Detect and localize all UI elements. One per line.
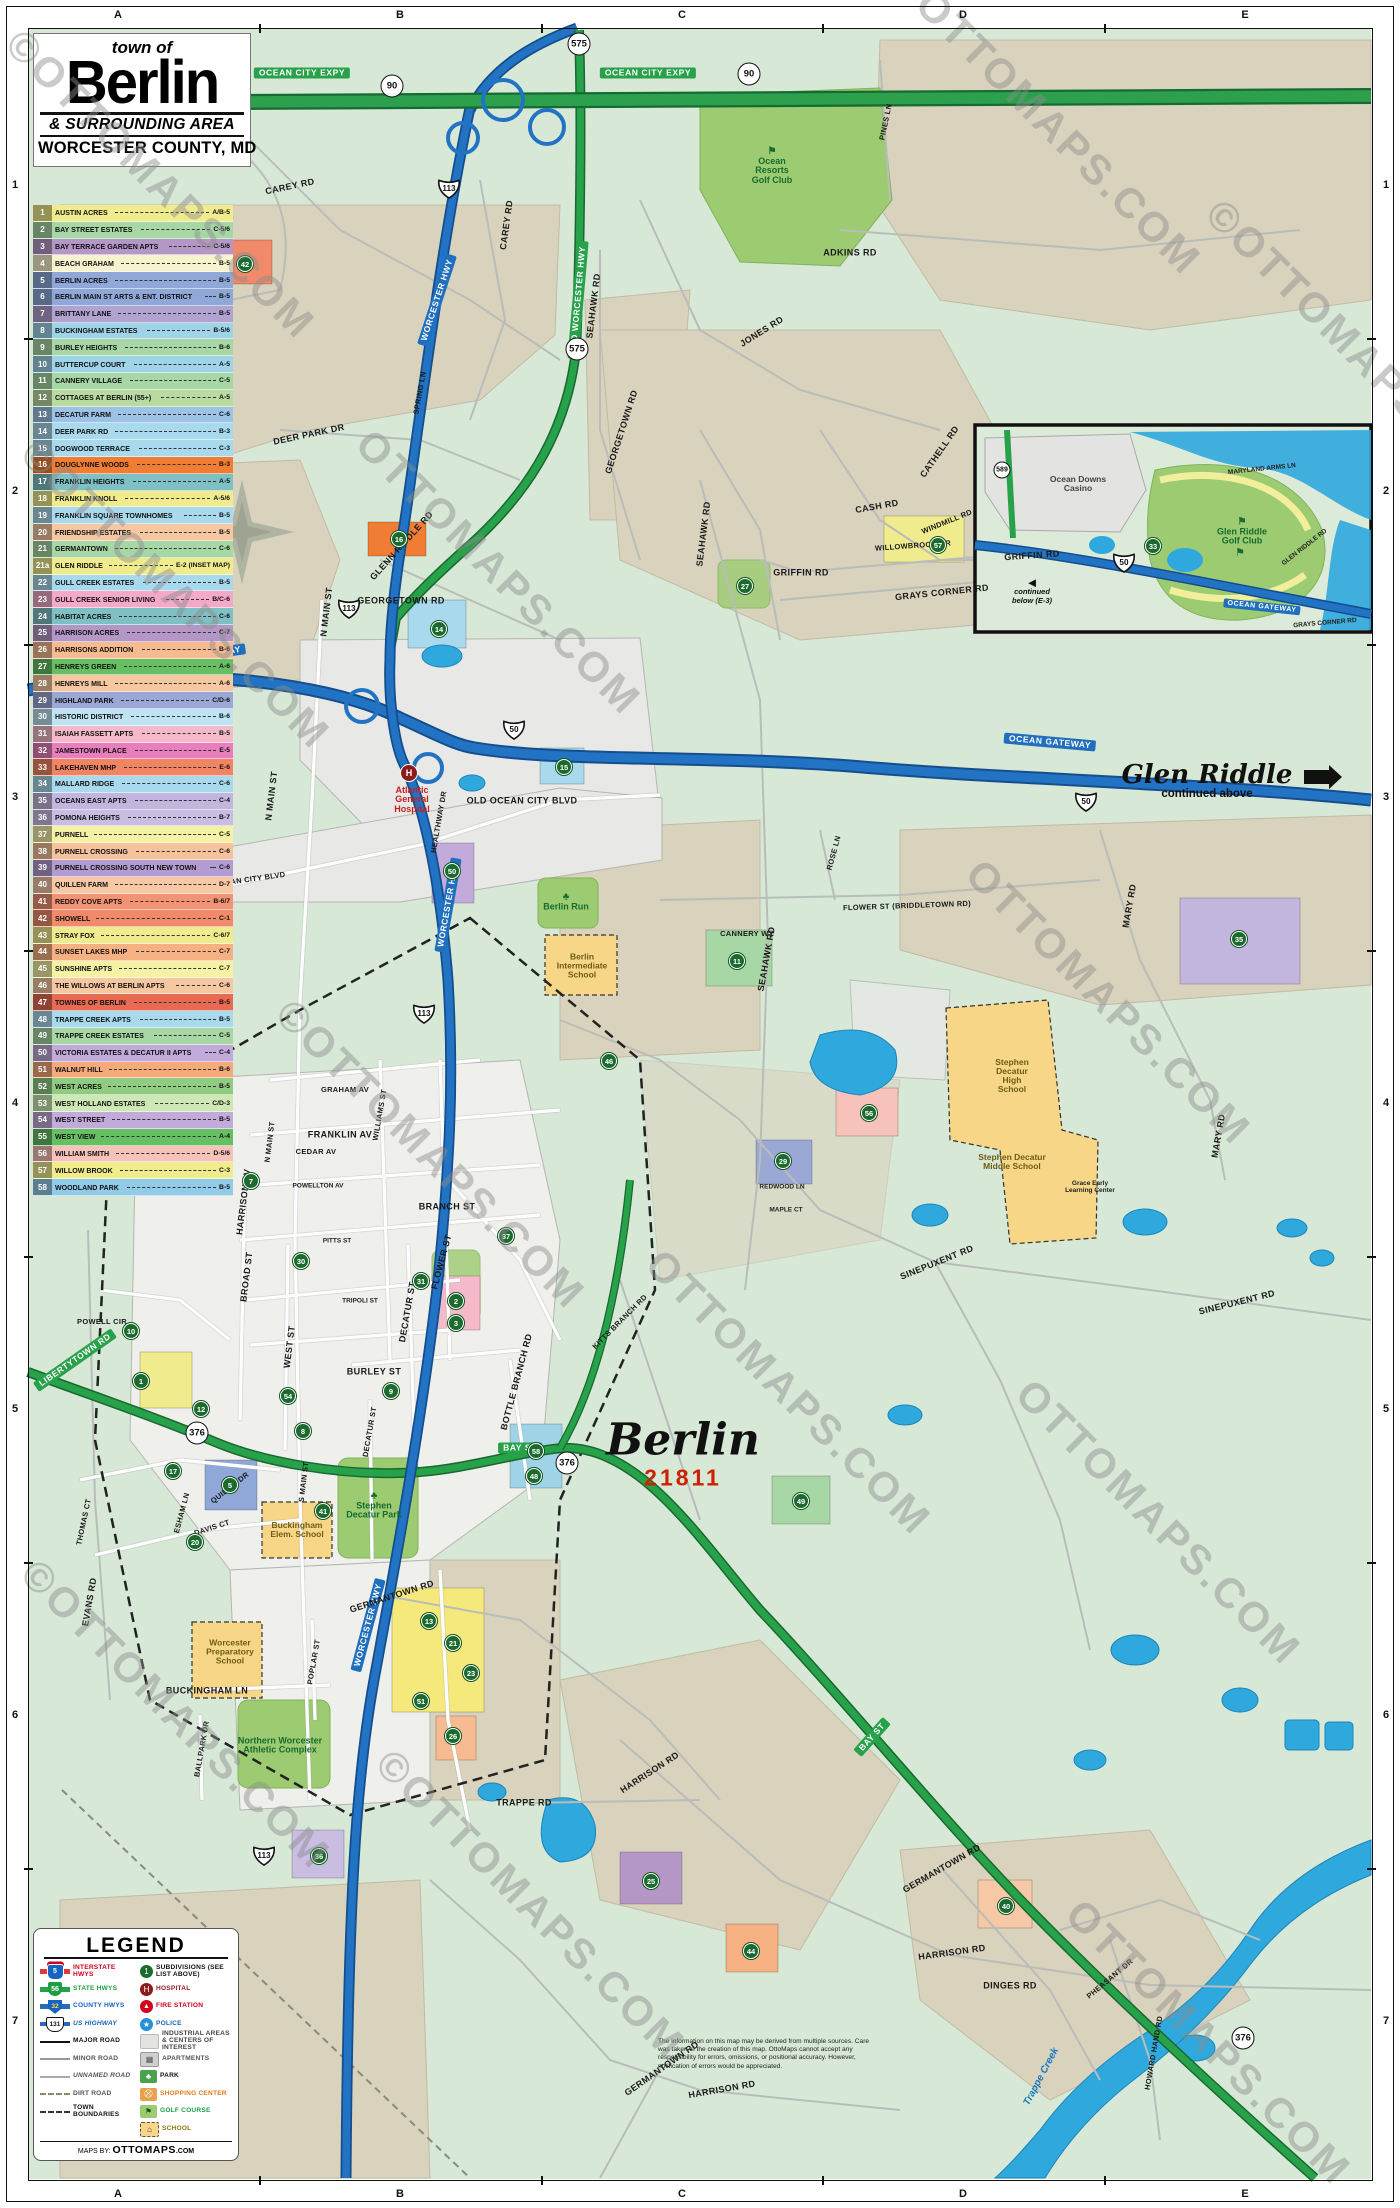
continuation-arrow-icon	[1304, 770, 1330, 784]
subdivision-number: 21	[33, 541, 52, 557]
golf-icon: ⚑	[140, 2105, 157, 2118]
subdivision-gridref: B-5	[219, 512, 230, 519]
subdivision-marker-14: 14	[431, 621, 447, 637]
subdivision-gridref: C-5/6	[213, 243, 230, 250]
subdivision-marker-44: 44	[743, 1943, 759, 1959]
subdivision-row: 26HARRISONS ADDITIONB-6	[33, 642, 233, 659]
subdivision-name: BAY TERRACE GARDEN APTS	[55, 242, 158, 251]
subdivision-row: 9BURLEY HEIGHTSB-6	[33, 339, 233, 356]
subdivision-gridref: C-6	[219, 780, 230, 787]
subdivision-marker-17: 17	[165, 1463, 181, 1479]
subdivision-gridref: C-7	[219, 965, 230, 972]
subdivision-marker-35: 35	[1231, 931, 1247, 947]
legend-symbol-industrial: INDUSTRIAL AREAS & CENTERS OF INTEREST	[140, 2033, 232, 2051]
inset-continuation-note: ◄ continued below (E-3)	[1012, 578, 1052, 605]
park-icon: ♣	[140, 2070, 157, 2083]
legend-symbols: 1SUBDIVISIONS (SEE LIST ABOVE)HHOSPITAL▲…	[140, 1963, 232, 2138]
subdivision-number: 53	[33, 1095, 52, 1111]
subdivision-gridref: B-5	[219, 1016, 230, 1023]
subdivision-row: 47TOWNES OF BERLINB-5	[33, 994, 233, 1011]
subdivision-row: 4BEACH GRAHAMB-5	[33, 255, 233, 272]
subdivision-number: 42	[33, 910, 52, 926]
grid-col-A: A	[114, 9, 122, 21]
subdivision-number: 54	[33, 1112, 52, 1128]
subdivision-number: 52	[33, 1078, 52, 1094]
subdivision-name: WALNUT HILL	[55, 1065, 103, 1074]
subdivision-row: 18FRANKLIN KNOLLA-5/6	[33, 491, 233, 508]
subdivision-gridref: E-5	[219, 747, 230, 754]
town-label-berlin: Berlin 21811	[606, 1419, 760, 1492]
subdivision-gridref: B-5	[219, 579, 230, 586]
subdivision-row: 2BAY STREET ESTATESC-5/6	[33, 222, 233, 239]
grid-row-6: 6	[12, 1709, 18, 1721]
subdivision-name: BUCKINGHAM ESTATES	[55, 326, 138, 335]
subdivision-name: DOUGLYNNE WOODS	[55, 460, 129, 469]
subdivision-name: BERLIN ACRES	[55, 276, 108, 285]
legend-label: DIRT ROAD	[73, 2091, 111, 2098]
subdivision-name: WEST VIEW	[55, 1132, 95, 1141]
glen-riddle-name: Glen Riddle	[1112, 762, 1302, 788]
grid-row-2: 2	[1383, 485, 1389, 497]
subdivision-marker-29: 29	[775, 1153, 791, 1169]
subdivision-row: 11CANNERY VILLAGEC-5	[33, 373, 233, 390]
legend-symbol-apartments: ▦APARTMENTS	[140, 2051, 232, 2069]
subdivision-number: 21a	[33, 558, 52, 574]
subdivision-row: 28HENREYS MILLA-6	[33, 675, 233, 692]
grid-row-3: 3	[12, 791, 18, 803]
subdivision-gridref: B-5	[219, 260, 230, 267]
subdivision-row: 39PURNELL CROSSING SOUTH NEW TOWNC-6	[33, 860, 233, 877]
subdivision-name: POMONA HEIGHTS	[55, 813, 120, 822]
subdivision-name: TRAPPE CREEK APTS	[55, 1015, 131, 1024]
subdivision-name: VICTORIA ESTATES & DECATUR II APTS	[55, 1048, 191, 1057]
grid-col-C: C	[678, 2188, 686, 2200]
subdivision-gridref: B-6	[219, 344, 230, 351]
subdivision-name: DOGWOOD TERRACE	[55, 444, 130, 453]
subdivision-number: 45	[33, 961, 52, 977]
subdivision-name: HARRISONS ADDITION	[55, 645, 133, 654]
subdivision-row: 20FRIENDSHIP ESTATESB-5	[33, 524, 233, 541]
subdivision-marker-15: 15	[556, 759, 572, 775]
apartments-icon: ▦	[140, 2052, 159, 2067]
subdivision-name: QUILLEN FARM	[55, 880, 108, 889]
grid-row-7: 7	[1383, 2015, 1389, 2027]
legend-label: PARK	[160, 2073, 179, 2080]
legend-symbol-golf: ⚑GOLF COURSE	[140, 2103, 232, 2121]
subdivision-marker-46: 46	[601, 1053, 617, 1069]
ruler-tick	[24, 1868, 33, 1870]
subdivision-marker-50: 50	[444, 863, 460, 879]
subdivision-gridref: B-5	[219, 293, 230, 300]
subdivision-number: 58	[33, 1179, 52, 1195]
subdivision-number: 22	[33, 575, 52, 591]
subdivision-number: 36	[33, 810, 52, 826]
subdivision-name: REDDY COVE APTS	[55, 897, 122, 906]
legend-label: UNNAMED ROAD	[73, 2073, 130, 2080]
subdivision-gridref: C-6	[219, 545, 230, 552]
subdivision-row: 33LAKEHAVEN MHPE-6	[33, 759, 233, 776]
subdivision-gridref: C-6	[219, 864, 230, 871]
credit-brand: OTTOMAPS	[113, 2144, 176, 2156]
subdivision-number: 25	[33, 625, 52, 641]
subdivision-row: 24HABITAT ACRESC-6	[33, 608, 233, 625]
ruler-tick	[24, 1562, 33, 1564]
subdivision-number: 11	[33, 373, 52, 389]
ruler-tick	[1367, 1256, 1376, 1258]
subdivision-gridref: B-6	[219, 713, 230, 720]
subdivision-number: 55	[33, 1129, 52, 1145]
subdivision-number: 30	[33, 709, 52, 725]
grid-row-2: 2	[12, 485, 18, 497]
subdivision-gridref: A-6	[219, 680, 230, 687]
subdivision-gridref: B-3	[219, 461, 230, 468]
subdivision-row: 3BAY TERRACE GARDEN APTSC-5/6	[33, 239, 233, 256]
subdivision-marker-20: 20	[187, 1534, 203, 1550]
subdivision-name: SHOWELL	[55, 914, 90, 923]
subdivision-gridref: A-6	[219, 663, 230, 670]
subdivision-number: 7	[33, 306, 52, 322]
subdivision-row: 8BUCKINGHAM ESTATESB-5/6	[33, 323, 233, 340]
subdivision-name: JAMESTOWN PLACE	[55, 746, 127, 755]
legend-label: US HIGHWAY	[73, 2021, 117, 2028]
subdivision-name: SUNSHINE APTS	[55, 964, 112, 973]
subdivision-name: WEST STREET	[55, 1115, 105, 1124]
subdivision-number: 43	[33, 927, 52, 943]
legend-label: SHOPPING CENTER	[160, 2091, 227, 2098]
subdivision-marker-42: 42	[237, 256, 253, 272]
subdivision-marker-1: 1	[133, 1373, 149, 1389]
subdivision-row: 43STRAY FOXC-6/7	[33, 927, 233, 944]
subdivision-row: 22GULL CREEK ESTATESB-5	[33, 575, 233, 592]
subdivision-gridref: C-7	[219, 948, 230, 955]
subdivision-row: 48TRAPPE CREEK APTSB-5	[33, 1011, 233, 1028]
subdivision-name: THE WILLOWS AT BERLIN APTS	[55, 981, 165, 990]
ruler-tick	[822, 2176, 824, 2185]
subdivision-gridref: C-1	[219, 915, 230, 922]
subdivision-number: 47	[33, 994, 52, 1010]
subdivision-gridref: D-5/6	[213, 1150, 230, 1157]
subdivision-gridref: B-6/7	[213, 898, 230, 905]
ruler-tick	[1367, 950, 1376, 952]
subdivision-row: 51WALNUT HILLB-6	[33, 1062, 233, 1079]
hospital-icon: H	[400, 764, 418, 782]
subdivision-name: STRAY FOX	[55, 931, 95, 940]
grid-row-3: 3	[1383, 791, 1389, 803]
subdivision-number: 49	[33, 1028, 52, 1044]
subdivision-number: 37	[33, 826, 52, 842]
subdivision-marker-48: 48	[526, 1468, 542, 1484]
subdivision-marker-30: 30	[293, 1253, 309, 1269]
subdivision-row: 37PURNELLC-5	[33, 826, 233, 843]
legend-label: TOWN BOUNDARIES	[73, 2105, 136, 2119]
subdivision-gridref: B-5	[219, 1116, 230, 1123]
grid-row-7: 7	[12, 2015, 18, 2027]
subdivision-number: 3	[33, 239, 52, 255]
subdivision-gridref: B-5	[219, 730, 230, 737]
subdivision-number: 2	[33, 222, 52, 238]
legend-symbol-shopping: ⛒SHOPPING CENTER	[140, 2086, 232, 2104]
legend-line-sample	[40, 2058, 70, 2060]
subdivision-gridref: C-7	[219, 629, 230, 636]
subdivision-gridref: B-5/6	[213, 327, 230, 334]
subdivision-name: FRANKLIN SQUARE TOWNHOMES	[55, 511, 173, 520]
subdivision-row: 53WEST HOLLAND ESTATESC/D-3	[33, 1095, 233, 1112]
subdivision-number: 18	[33, 491, 52, 507]
subdivision-marker-3: 3	[448, 1315, 464, 1331]
subdivision-marker-36: 36	[311, 1848, 327, 1864]
subdivision-row: 30HISTORIC DISTRICTB-6	[33, 709, 233, 726]
subdivision-marker-41: 41	[315, 1503, 331, 1519]
subdivision-name: OCEANS EAST APTS	[55, 796, 127, 805]
grid-row-6: 6	[1383, 1709, 1389, 1721]
subdivision-marker-7: 7	[243, 1173, 259, 1189]
legend-label: MINOR ROAD	[73, 2056, 118, 2063]
subdivision-gridref: C-3	[219, 1167, 230, 1174]
berlin-map-page: ⚑ OCEAN CITY EXPYOCEAN CITY EXPYWORCESTE…	[0, 0, 1400, 2208]
ruler-tick	[1367, 644, 1376, 646]
legend-line-sample	[40, 2041, 70, 2044]
subdivision-name: TRAPPE CREEK ESTATES	[55, 1031, 144, 1040]
subdivision-name: AUSTIN ACRES	[55, 208, 108, 217]
subdivision-row: 54WEST STREETB-5	[33, 1112, 233, 1129]
ruler-tick	[259, 24, 261, 33]
subdivision-gridref: C/D-3	[212, 1100, 230, 1107]
subdivision-number: 34	[33, 776, 52, 792]
subdivision-gridref: C-4	[219, 797, 230, 804]
subdivision-row: 55WEST VIEWA-4	[33, 1129, 233, 1146]
ruler-tick	[1367, 1868, 1376, 1870]
subdivision-name: GERMANTOWN	[55, 544, 108, 553]
credit-suffix: .COM	[176, 2148, 194, 2155]
fire-icon: ▲	[140, 2000, 153, 2013]
subdivision-name: HISTORIC DISTRICT	[55, 712, 123, 721]
subdivision-row: 58WOODLAND PARKB-5	[33, 1179, 233, 1196]
subdivision-marker-9: 9	[383, 1383, 399, 1399]
hospital-icon: H	[140, 1983, 153, 1996]
subdivision-marker-5: 5	[222, 1477, 238, 1493]
subdivision-number: 4	[33, 255, 52, 271]
subdivision-name: GLEN RIDDLE	[55, 561, 103, 570]
legend-line-sample	[40, 2093, 70, 2095]
subdivision-row: 15DOGWOOD TERRACEC-3	[33, 440, 233, 457]
subdivision-marker-13: 13	[421, 1613, 437, 1629]
subdivision-row: 12COTTAGES AT BERLIN (55+)A-5	[33, 390, 233, 407]
subdivision-row: 40QUILLEN FARMD-7	[33, 877, 233, 894]
subdivision-gridref: B/C-6	[212, 596, 230, 603]
subdivision-row: 27HENREYS GREENA-6	[33, 659, 233, 676]
ruler-tick	[822, 24, 824, 33]
subdivision-number: 32	[33, 743, 52, 759]
credit-pre: MAPS BY:	[78, 2148, 111, 2155]
legend-label: COUNTY HWYS	[73, 2003, 125, 2010]
subdivision-row: 16DOUGLYNNE WOODSB-3	[33, 457, 233, 474]
legend-symbol-fire: ▲FIRE STATION	[140, 1998, 232, 2016]
subdivision-number: 51	[33, 1062, 52, 1078]
subdivision-marker-16: 16	[391, 531, 407, 547]
subdivision-gridref: C-5	[219, 831, 230, 838]
subdivision-number: 41	[33, 894, 52, 910]
subdivision-marker-8: 8	[295, 1423, 311, 1439]
subdivision-marker-31: 31	[413, 1273, 429, 1289]
legend-road-types: 5INTERSTATE HWYS56STATE HWYS32COUNTY HWY…	[40, 1963, 136, 2138]
ruler-tick	[541, 24, 543, 33]
subdivision-name: WEST HOLLAND ESTATES	[55, 1099, 145, 1108]
subdivision-row: 42SHOWELLC-1	[33, 910, 233, 927]
legend-symbol-hospital: HHOSPITAL	[140, 1981, 232, 1999]
grid-col-D: D	[959, 2188, 967, 2200]
subdivision-marker-10: 10	[123, 1323, 139, 1339]
subdivision-marker-57: 57	[930, 537, 946, 553]
subdivision-name: BRITTANY LANE	[55, 309, 111, 318]
ruler-tick	[259, 2176, 261, 2185]
subdivision-gridref: B-5	[219, 1083, 230, 1090]
legend-label: INDUSTRIAL AREAS & CENTERS OF INTEREST	[162, 2031, 232, 2052]
grid-row-4: 4	[1383, 1097, 1389, 1109]
subdivision-marker-33: 33	[1145, 538, 1161, 554]
subdivision-marker-2: 2	[448, 1293, 464, 1309]
legend-road-major: MAJOR ROAD	[40, 2033, 136, 2051]
subdivision-row: 32JAMESTOWN PLACEE-5	[33, 743, 233, 760]
subdivision-marker-27: 27	[737, 578, 753, 594]
subdivision-number: 27	[33, 659, 52, 675]
subdivision-gridref: C-5/6	[213, 226, 230, 233]
subdivision-gridref: C-6	[219, 848, 230, 855]
subdivision-row: 7BRITTANY LANEB-5	[33, 306, 233, 323]
title-county: WORCESTER COUNTY, MD	[38, 139, 246, 158]
ruler-tick	[1367, 338, 1376, 340]
subdivision-name: WILLIAM SMITH	[55, 1149, 109, 1158]
grid-row-5: 5	[1383, 1403, 1389, 1415]
legend-line-sample: 5	[40, 1969, 70, 1974]
subdivision-number: 50	[33, 1045, 52, 1061]
subdivision-gridref: C-6	[219, 613, 230, 620]
subdivision-gridref: C-6	[219, 411, 230, 418]
subdivision-gridref: C/D-6	[212, 697, 230, 704]
subdivision-marker-54: 54	[280, 1388, 296, 1404]
subdivision-gridref: A-4	[219, 1133, 230, 1140]
ruler-tick	[24, 644, 33, 646]
subdivision-gridref: C-5	[219, 1032, 230, 1039]
subdivision-gridref: C-6	[219, 982, 230, 989]
glen-riddle-note: Glen Riddle continued above	[1112, 762, 1302, 800]
legend-symbol-subdivision: 1SUBDIVISIONS (SEE LIST ABOVE)	[140, 1963, 232, 1981]
subdivision-name: FRANKLIN KNOLL	[55, 494, 117, 503]
subdivision-marker-37: 37	[498, 1228, 514, 1244]
subdivision-icon: 1	[140, 1965, 153, 1978]
subdivision-number: 48	[33, 1011, 52, 1027]
town-name: Berlin	[606, 1419, 760, 1463]
subdivision-name: BERLIN MAIN ST ARTS & ENT. DISTRICT	[55, 292, 192, 301]
ruler-tick	[1367, 1562, 1376, 1564]
subdivision-gridref: B-5	[219, 310, 230, 317]
subdivision-name: GULL CREEK SENIOR LIVING	[55, 595, 155, 604]
legend-road-unnamed: UNNAMED ROAD	[40, 2068, 136, 2086]
subdivision-gridref: C-6/7	[213, 932, 230, 939]
subdivision-row: 49TRAPPE CREEK ESTATESC-5	[33, 1028, 233, 1045]
subdivision-row: 34MALLARD RIDGEC-6	[33, 776, 233, 793]
subdivision-name: GULL CREEK ESTATES	[55, 578, 134, 587]
subdivision-name: PURNELL CROSSING SOUTH NEW TOWN	[55, 863, 196, 872]
legend-credit: MAPS BY: OTTOMAPS.COM	[40, 2141, 232, 2156]
subdivision-row: 35OCEANS EAST APTSC-4	[33, 793, 233, 810]
subdivision-marker-49: 49	[793, 1493, 809, 1509]
subdivision-number: 23	[33, 591, 52, 607]
subdivision-number: 17	[33, 474, 52, 490]
subdivision-row: 44SUNSET LAKES MHPC-7	[33, 944, 233, 961]
legend-road-dirt: DIRT ROAD	[40, 2086, 136, 2104]
grid-col-C: C	[678, 9, 686, 21]
subdivision-gridref: E-6	[219, 764, 230, 771]
subdivision-number: 20	[33, 524, 52, 540]
legend-road-interstate: 5INTERSTATE HWYS	[40, 1963, 136, 1981]
legend-road-us: 131US HIGHWAY	[40, 2016, 136, 2034]
subdivision-name: PURNELL CROSSING	[55, 847, 128, 856]
ruler-tick	[541, 2176, 543, 2185]
subdivision-row: 5BERLIN ACRESB-5	[33, 272, 233, 289]
subdivision-name: TOWNES OF BERLIN	[55, 998, 126, 1007]
subdivision-row: 23GULL CREEK SENIOR LIVINGB/C-6	[33, 591, 233, 608]
subdivision-number: 56	[33, 1146, 52, 1162]
subdivision-gridref: B-6	[219, 646, 230, 653]
ruler-tick	[24, 338, 33, 340]
grid-col-E: E	[1241, 2188, 1248, 2200]
legend-label: GOLF COURSE	[160, 2108, 211, 2115]
legend-label: POLICE	[156, 2021, 182, 2028]
subdivision-list: 1AUSTIN ACRESA/B-52BAY STREET ESTATESC-5…	[33, 205, 233, 1196]
subdivision-gridref: C-3	[219, 445, 230, 452]
subdivision-row: 41REDDY COVE APTSB-6/7	[33, 894, 233, 911]
subdivision-name: WOODLAND PARK	[55, 1183, 119, 1192]
subdivision-row: 14DEER PARK RDB-3	[33, 423, 233, 440]
subdivision-number: 10	[33, 356, 52, 372]
subdivision-number: 38	[33, 843, 52, 859]
subdivision-number: 44	[33, 944, 52, 960]
subdivision-marker-25: 25	[643, 1873, 659, 1889]
industrial-icon	[140, 2034, 159, 2049]
legend-road-minor: MINOR ROAD	[40, 2051, 136, 2069]
subdivision-gridref: C-4	[219, 1049, 230, 1056]
subdivision-row: 13DECATUR FARMC-6	[33, 407, 233, 424]
subdivision-gridref: B-3	[219, 428, 230, 435]
subdivision-row: 17FRANKLIN HEIGHTSA-5	[33, 474, 233, 491]
subdivision-number: 40	[33, 877, 52, 893]
legend-title: LEGEND	[44, 1934, 228, 1959]
subdivision-row: 1AUSTIN ACRESA/B-5	[33, 205, 233, 222]
subdivision-gridref: A-5	[219, 394, 230, 401]
subdivision-marker-12: 12	[193, 1401, 209, 1417]
subdivision-name: LAKEHAVEN MHP	[55, 763, 116, 772]
subdivision-name: SUNSET LAKES MHP	[55, 947, 127, 956]
subdivision-gridref: B-5	[219, 1184, 230, 1191]
grid-col-A: A	[114, 2188, 122, 2200]
subdivision-row: 36POMONA HEIGHTSB-7	[33, 810, 233, 827]
subdivision-gridref: A/B-5	[212, 209, 230, 216]
subdivision-name: MALLARD RIDGE	[55, 779, 114, 788]
legend-line-sample	[40, 2076, 70, 2078]
title-name: Berlin	[38, 54, 246, 112]
subdivision-name: WEST ACRES	[55, 1082, 102, 1091]
subdivision-number: 14	[33, 423, 52, 439]
legend-line-sample: 131	[40, 2022, 70, 2026]
legend-line-sample: 32	[40, 2004, 70, 2009]
subdivision-name: DECATUR FARM	[55, 410, 111, 419]
grid-col-D: D	[959, 9, 967, 21]
legend-road-boundary: TOWN BOUNDARIES	[40, 2103, 136, 2121]
ruler-tick	[24, 950, 33, 952]
subdivision-name: BURLEY HEIGHTS	[55, 343, 117, 352]
subdivision-gridref: B-5	[219, 999, 230, 1006]
subdivision-number: 35	[33, 793, 52, 809]
